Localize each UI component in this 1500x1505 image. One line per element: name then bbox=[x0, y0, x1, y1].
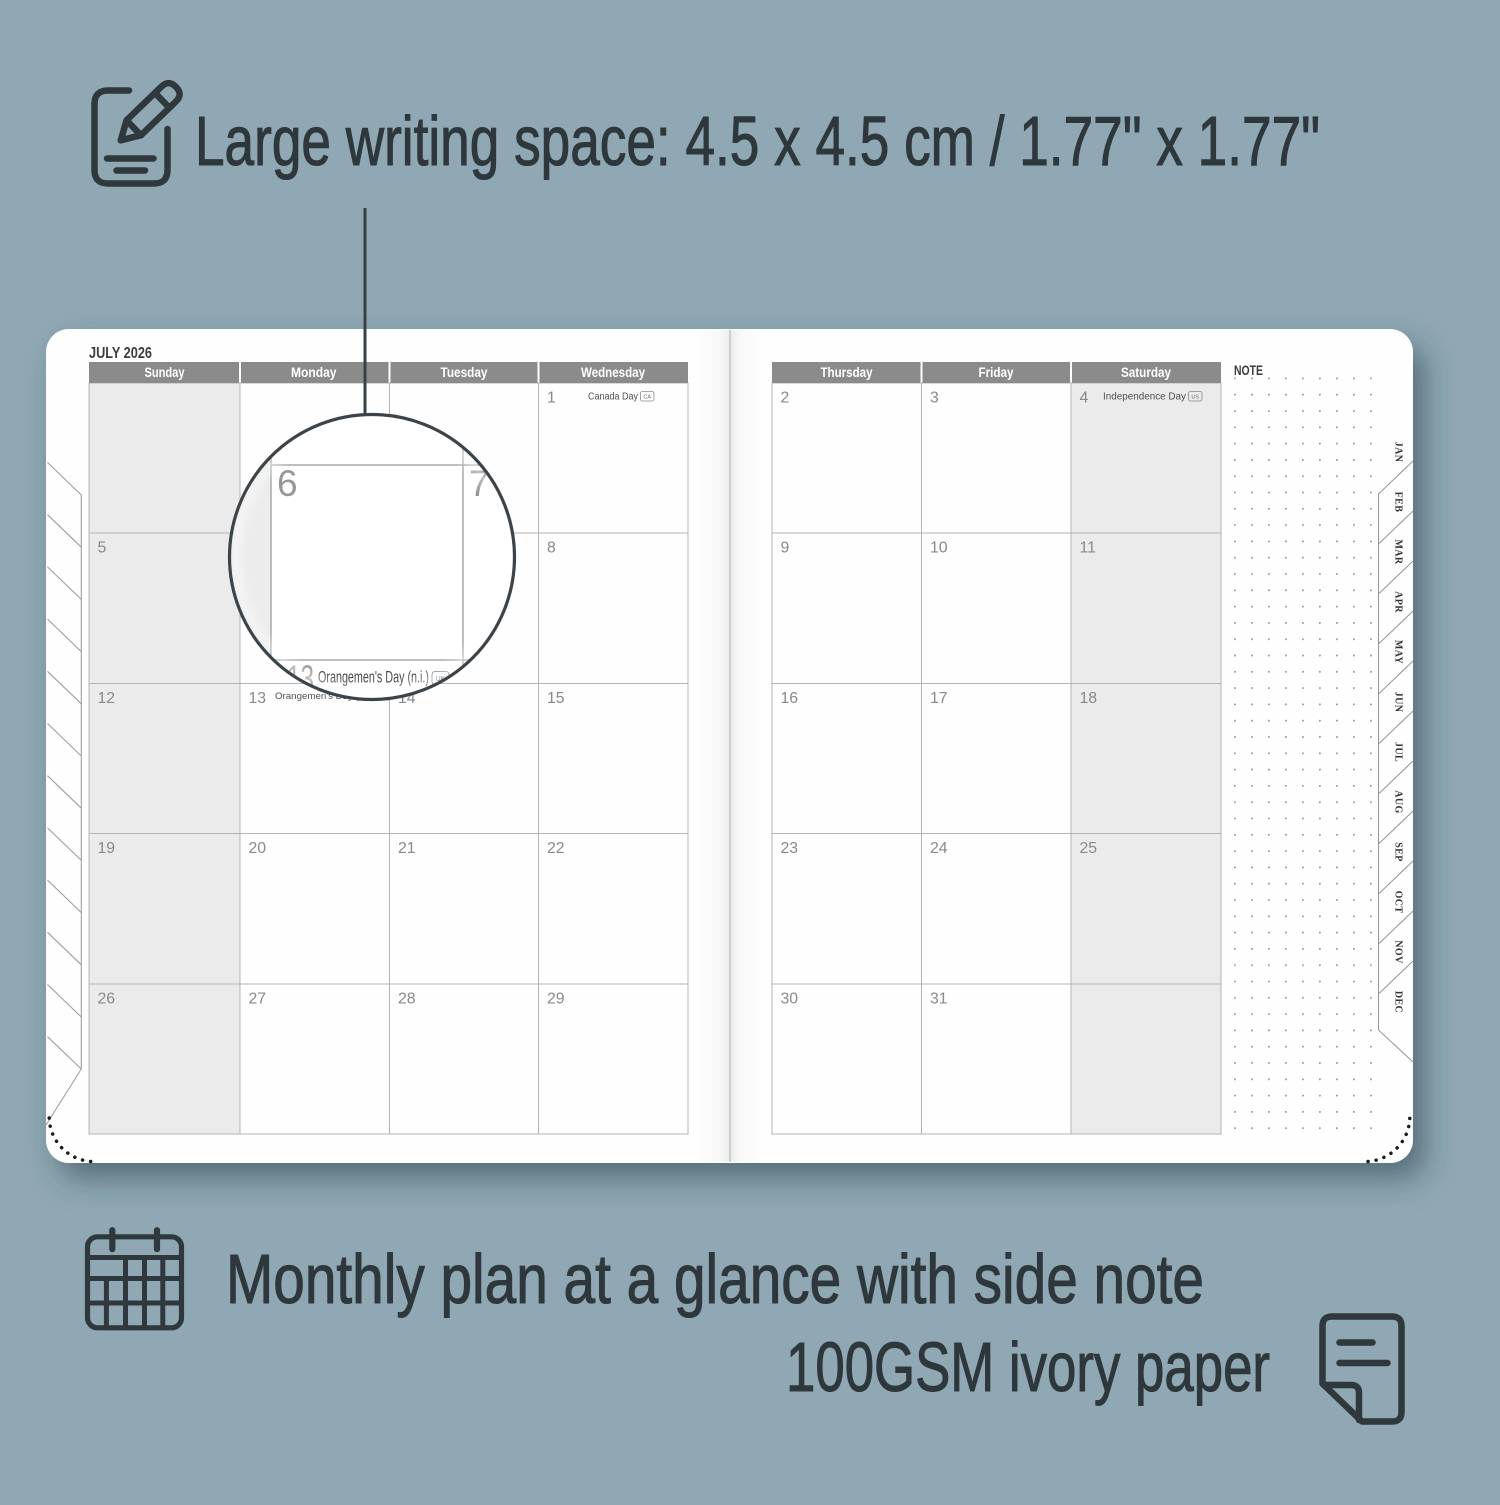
svg-text:Saturday: Saturday bbox=[1121, 365, 1171, 380]
svg-text:JULY 2026: JULY 2026 bbox=[89, 345, 152, 362]
svg-text:DEC: DEC bbox=[1393, 991, 1404, 1013]
svg-text:Wednesday: Wednesday bbox=[581, 365, 645, 380]
svg-text:19: 19 bbox=[98, 840, 116, 857]
svg-text:20: 20 bbox=[249, 840, 267, 857]
svg-text:Monthly plan at a glance with: Monthly plan at a glance with side note bbox=[226, 1240, 1204, 1318]
svg-text:CA: CA bbox=[643, 395, 651, 401]
svg-text:MAY: MAY bbox=[1393, 640, 1404, 665]
svg-text:27: 27 bbox=[249, 990, 267, 1007]
svg-text:1: 1 bbox=[547, 390, 556, 407]
svg-text:3: 3 bbox=[930, 390, 939, 407]
svg-text:Tuesday: Tuesday bbox=[441, 365, 488, 380]
svg-text:29: 29 bbox=[547, 990, 565, 1007]
svg-text:FEB: FEB bbox=[1393, 492, 1404, 513]
svg-text:JUL: JUL bbox=[1393, 742, 1404, 762]
svg-text:OCT: OCT bbox=[1393, 891, 1404, 914]
svg-text:23: 23 bbox=[781, 840, 799, 857]
svg-text:21: 21 bbox=[398, 840, 416, 857]
svg-text:2: 2 bbox=[781, 390, 790, 407]
svg-text:16: 16 bbox=[781, 690, 799, 707]
svg-text:SEP: SEP bbox=[1393, 842, 1404, 862]
svg-text:Monday: Monday bbox=[291, 365, 337, 380]
svg-text:11: 11 bbox=[1080, 540, 1097, 557]
svg-text:8: 8 bbox=[547, 540, 556, 557]
svg-text:Friday: Friday bbox=[979, 365, 1014, 380]
svg-text:24: 24 bbox=[930, 840, 948, 857]
svg-text:JAN: JAN bbox=[1393, 442, 1404, 463]
svg-text:Canada Day: Canada Day bbox=[588, 392, 638, 403]
svg-text:4: 4 bbox=[1080, 390, 1089, 407]
svg-text:100GSM ivory paper: 100GSM ivory paper bbox=[786, 1328, 1270, 1406]
svg-text:NOV: NOV bbox=[1393, 940, 1404, 964]
svg-text:30: 30 bbox=[781, 990, 799, 1007]
svg-text:Thursday: Thursday bbox=[821, 365, 873, 380]
svg-text:28: 28 bbox=[398, 990, 416, 1007]
svg-text:12: 12 bbox=[98, 690, 116, 707]
svg-text:31: 31 bbox=[930, 990, 948, 1007]
svg-text:15: 15 bbox=[547, 690, 565, 707]
svg-text:26: 26 bbox=[98, 990, 116, 1007]
svg-text:Large writing space: 4.5 x 4.5: Large writing space: 4.5 x 4.5 cm / 1.77… bbox=[195, 102, 1320, 180]
svg-text:17: 17 bbox=[930, 690, 948, 707]
svg-text:AUG: AUG bbox=[1393, 790, 1404, 813]
svg-text:13: 13 bbox=[249, 690, 267, 707]
svg-text:10: 10 bbox=[930, 540, 948, 557]
svg-text:5: 5 bbox=[98, 540, 107, 557]
svg-text:NOTE: NOTE bbox=[1234, 362, 1263, 378]
svg-text:APR: APR bbox=[1393, 591, 1404, 613]
svg-text:Sunday: Sunday bbox=[145, 365, 185, 380]
svg-text:MAR: MAR bbox=[1393, 539, 1404, 564]
svg-text:18: 18 bbox=[1080, 690, 1098, 707]
svg-text:9: 9 bbox=[781, 540, 790, 557]
svg-text:JUN: JUN bbox=[1393, 692, 1404, 713]
svg-text:Independence Day: Independence Day bbox=[1103, 392, 1186, 403]
svg-text:25: 25 bbox=[1080, 840, 1098, 857]
svg-text:22: 22 bbox=[547, 840, 565, 857]
svg-text:US: US bbox=[1191, 395, 1199, 401]
